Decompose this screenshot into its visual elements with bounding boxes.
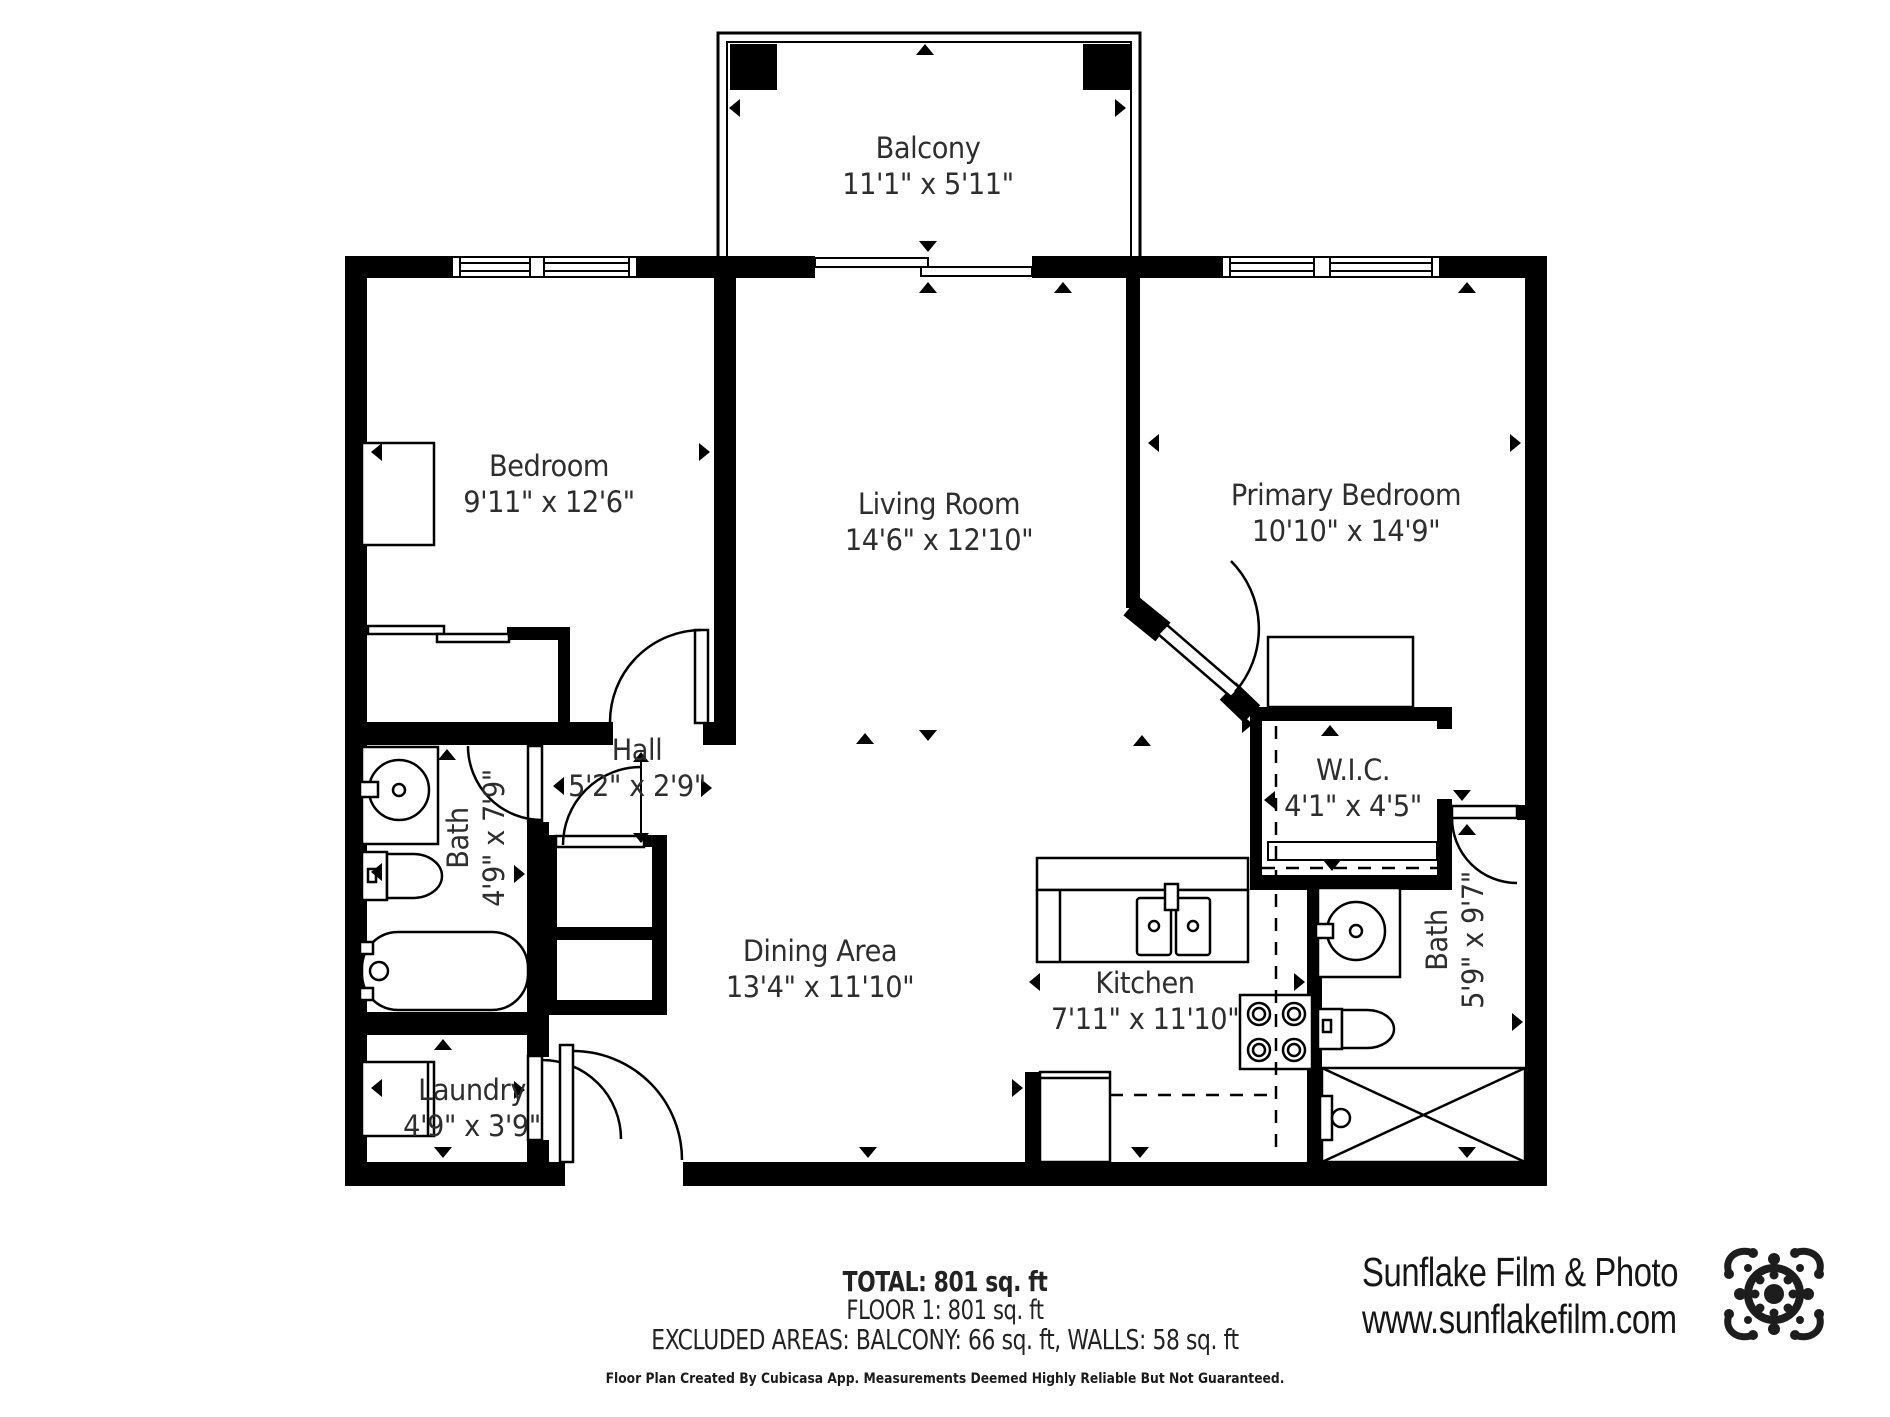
closet-shelf-wic xyxy=(1268,842,1437,860)
toilet-icon-bath-right xyxy=(1318,1009,1394,1049)
room-label-bath-left: Bath 4'9" x 7'9" xyxy=(440,769,512,907)
balcony-column-right xyxy=(1083,44,1130,90)
room-dims: 4'1" x 4'5" xyxy=(1284,788,1422,824)
entry-door-icon xyxy=(560,1045,682,1162)
sink-icon-bath-left xyxy=(360,747,438,844)
room-label-bath-right: Bath 5'9" x 9'7" xyxy=(1419,871,1491,1009)
room-label-dining-area: Dining Area 13'4" x 11'10" xyxy=(726,933,914,1005)
window-icon-top-left xyxy=(452,257,637,277)
wardrobe-icon-bedroom xyxy=(362,443,434,545)
room-dims: 4'9" x 3'9" xyxy=(403,1108,541,1144)
room-dims: 13'4" x 11'10" xyxy=(726,969,914,1005)
room-dims: 5'9" x 9'7" xyxy=(1455,871,1491,1009)
room-dims: 14'6" x 12'10" xyxy=(845,522,1033,558)
floor-plan-drawing xyxy=(0,0,1890,1417)
room-label-laundry: Laundry 4'9" x 3'9" xyxy=(403,1072,541,1144)
room-name: Laundry xyxy=(403,1072,541,1108)
sliding-door-icon-balcony xyxy=(815,258,1032,276)
room-label-bedroom: Bedroom 9'11" x 12'6" xyxy=(463,448,634,520)
stove-icon xyxy=(1240,995,1312,1069)
watermark-website: www.sunflakefilm.com xyxy=(1362,1296,1678,1343)
room-name: Bath xyxy=(1419,871,1455,1009)
bathtub-icon xyxy=(360,932,528,1010)
room-dims: 7'11" x 11'10" xyxy=(1051,1001,1239,1037)
room-name: W.I.C. xyxy=(1284,752,1422,788)
room-name: Bedroom xyxy=(463,448,634,484)
room-dims: 11'1" x 5'11" xyxy=(842,166,1013,202)
sliding-closet-icon-bedroom xyxy=(368,626,509,642)
kitchen-counter-bottom xyxy=(1040,1072,1110,1162)
room-name: Balcony xyxy=(842,130,1013,166)
room-dims: 9'11" x 12'6" xyxy=(463,484,634,520)
room-name: Kitchen xyxy=(1051,965,1239,1001)
room-label-hall: Hall 5'2" x 2'9" xyxy=(568,732,706,804)
room-label-living-room: Living Room 14'6" x 12'10" xyxy=(845,486,1033,558)
sunflake-logo-icon xyxy=(1718,1243,1830,1345)
disclaimer-text: Floor Plan Created By Cubicasa App. Meas… xyxy=(113,1371,1776,1387)
kitchen-sink-icon xyxy=(1037,884,1248,962)
watermark-company: Sunflake Film & Photo xyxy=(1362,1249,1678,1296)
watermark: Sunflake Film & Photo www.sunflakefilm.c… xyxy=(1362,1249,1678,1343)
room-dims: 10'10" x 14'9" xyxy=(1231,513,1461,549)
room-label-balcony: Balcony 11'1" x 5'11" xyxy=(842,130,1013,202)
room-name: Living Room xyxy=(845,486,1033,522)
sink-icon-bath-right xyxy=(1316,888,1400,977)
shower-icon xyxy=(1320,1068,1525,1162)
room-name: Bath xyxy=(440,769,476,907)
laundry-door-icon xyxy=(528,1056,621,1140)
toilet-icon-bath-left xyxy=(362,852,442,900)
window-icon-top-right xyxy=(1222,257,1440,277)
room-name: Hall xyxy=(568,732,706,768)
primary-bedroom-door-icon xyxy=(1158,561,1259,697)
room-name: Primary Bedroom xyxy=(1231,477,1461,513)
room-label-kitchen: Kitchen 7'11" x 11'10" xyxy=(1051,965,1239,1037)
floor-plan-page: Balcony 11'1" x 5'11" Bedroom 9'11" x 12… xyxy=(0,0,1890,1417)
windows xyxy=(452,257,1440,277)
room-label-primary-bedroom: Primary Bedroom 10'10" x 14'9" xyxy=(1231,477,1461,549)
room-label-wic: W.I.C. 4'1" x 4'5" xyxy=(1284,752,1422,824)
room-name: Dining Area xyxy=(726,933,914,969)
room-dims: 4'9" x 7'9" xyxy=(476,769,512,907)
dresser-icon-primary-bedroom xyxy=(1268,637,1413,707)
room-dims: 5'2" x 2'9" xyxy=(568,768,706,804)
wic-opening xyxy=(1437,728,1452,800)
balcony-column-left xyxy=(730,44,777,90)
kitchen-counter-peninsula xyxy=(1037,858,1248,890)
bedroom-door-icon xyxy=(610,630,708,723)
